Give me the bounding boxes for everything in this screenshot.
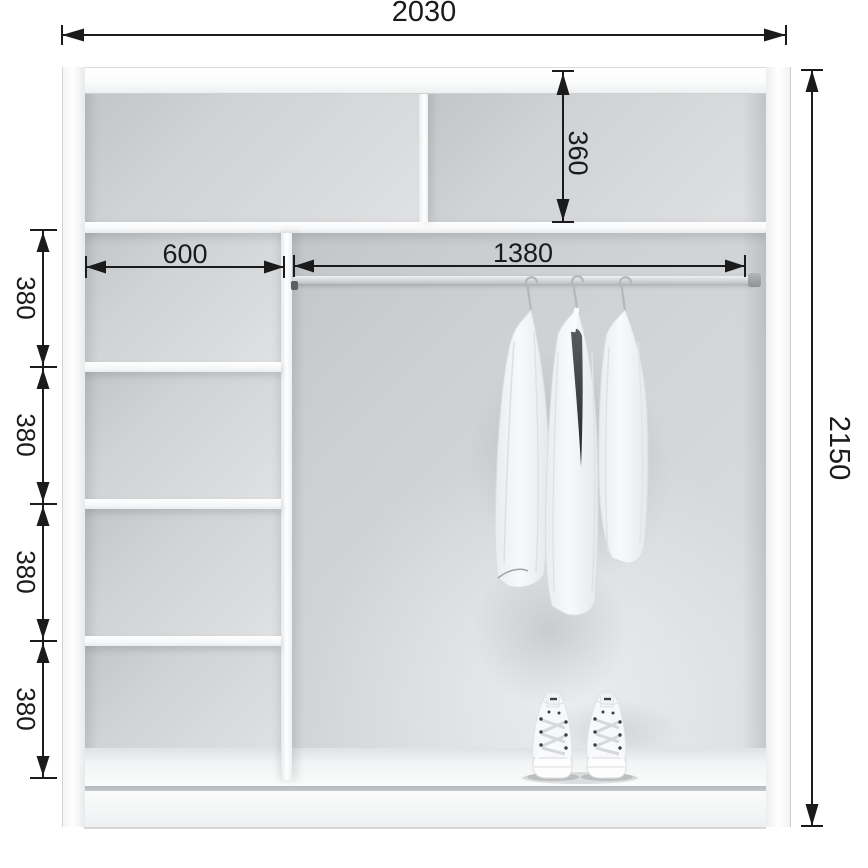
cabinet-floor: [84, 748, 766, 786]
left-compartment-4-wall: [84, 646, 281, 752]
dim-total-width: [62, 25, 786, 45]
left-shelf-2: [84, 499, 281, 509]
hanging-garments: [478, 272, 673, 617]
hanger-hooks-icon: [526, 276, 631, 312]
label-total-width: 2030: [324, 0, 524, 27]
rod-left-mount: [291, 281, 298, 290]
cabinet-right-wall: [766, 67, 791, 827]
left-compartment-3-wall: [84, 509, 281, 636]
label-rod-length: 1380: [453, 239, 593, 267]
left-compartment-2-wall: [84, 372, 281, 499]
rod-end-cap: [748, 273, 761, 287]
left-corner-shading: [84, 92, 98, 752]
garment-middle: [545, 308, 598, 615]
main-divider: [281, 233, 292, 780]
left-shelf-3: [84, 636, 281, 646]
label-top-compartment-height: 360: [564, 113, 592, 193]
dim-total-height: [801, 70, 823, 826]
compartment-top-left-wall: [84, 92, 419, 222]
label-total-height: 2150: [824, 388, 854, 508]
label-shelf-gap-1: 380: [13, 258, 39, 338]
right-corner-shading: [742, 92, 766, 752]
sneakers: [515, 686, 645, 786]
garment-right: [599, 310, 648, 563]
compartment-top-right-wall: [428, 92, 766, 222]
cabinet-left-wall: [62, 67, 85, 827]
sneaker-right: [587, 692, 626, 779]
sneaker-left: [533, 692, 572, 779]
garment-left: [495, 310, 549, 587]
label-left-column-width: 600: [125, 240, 245, 268]
top-divider: [419, 92, 428, 222]
top-shelf: [84, 222, 766, 233]
label-shelf-gap-2: 380: [13, 395, 39, 475]
cabinet-top-panel: [62, 67, 790, 94]
wardrobe-dimension-diagram: 2030 2150 360 600 1380 380 380 380 380: [0, 0, 868, 868]
left-shelf-1: [84, 362, 281, 372]
cabinet-plinth: [84, 791, 766, 829]
label-shelf-gap-3: 380: [13, 532, 39, 612]
label-shelf-gap-4: 380: [13, 669, 39, 749]
